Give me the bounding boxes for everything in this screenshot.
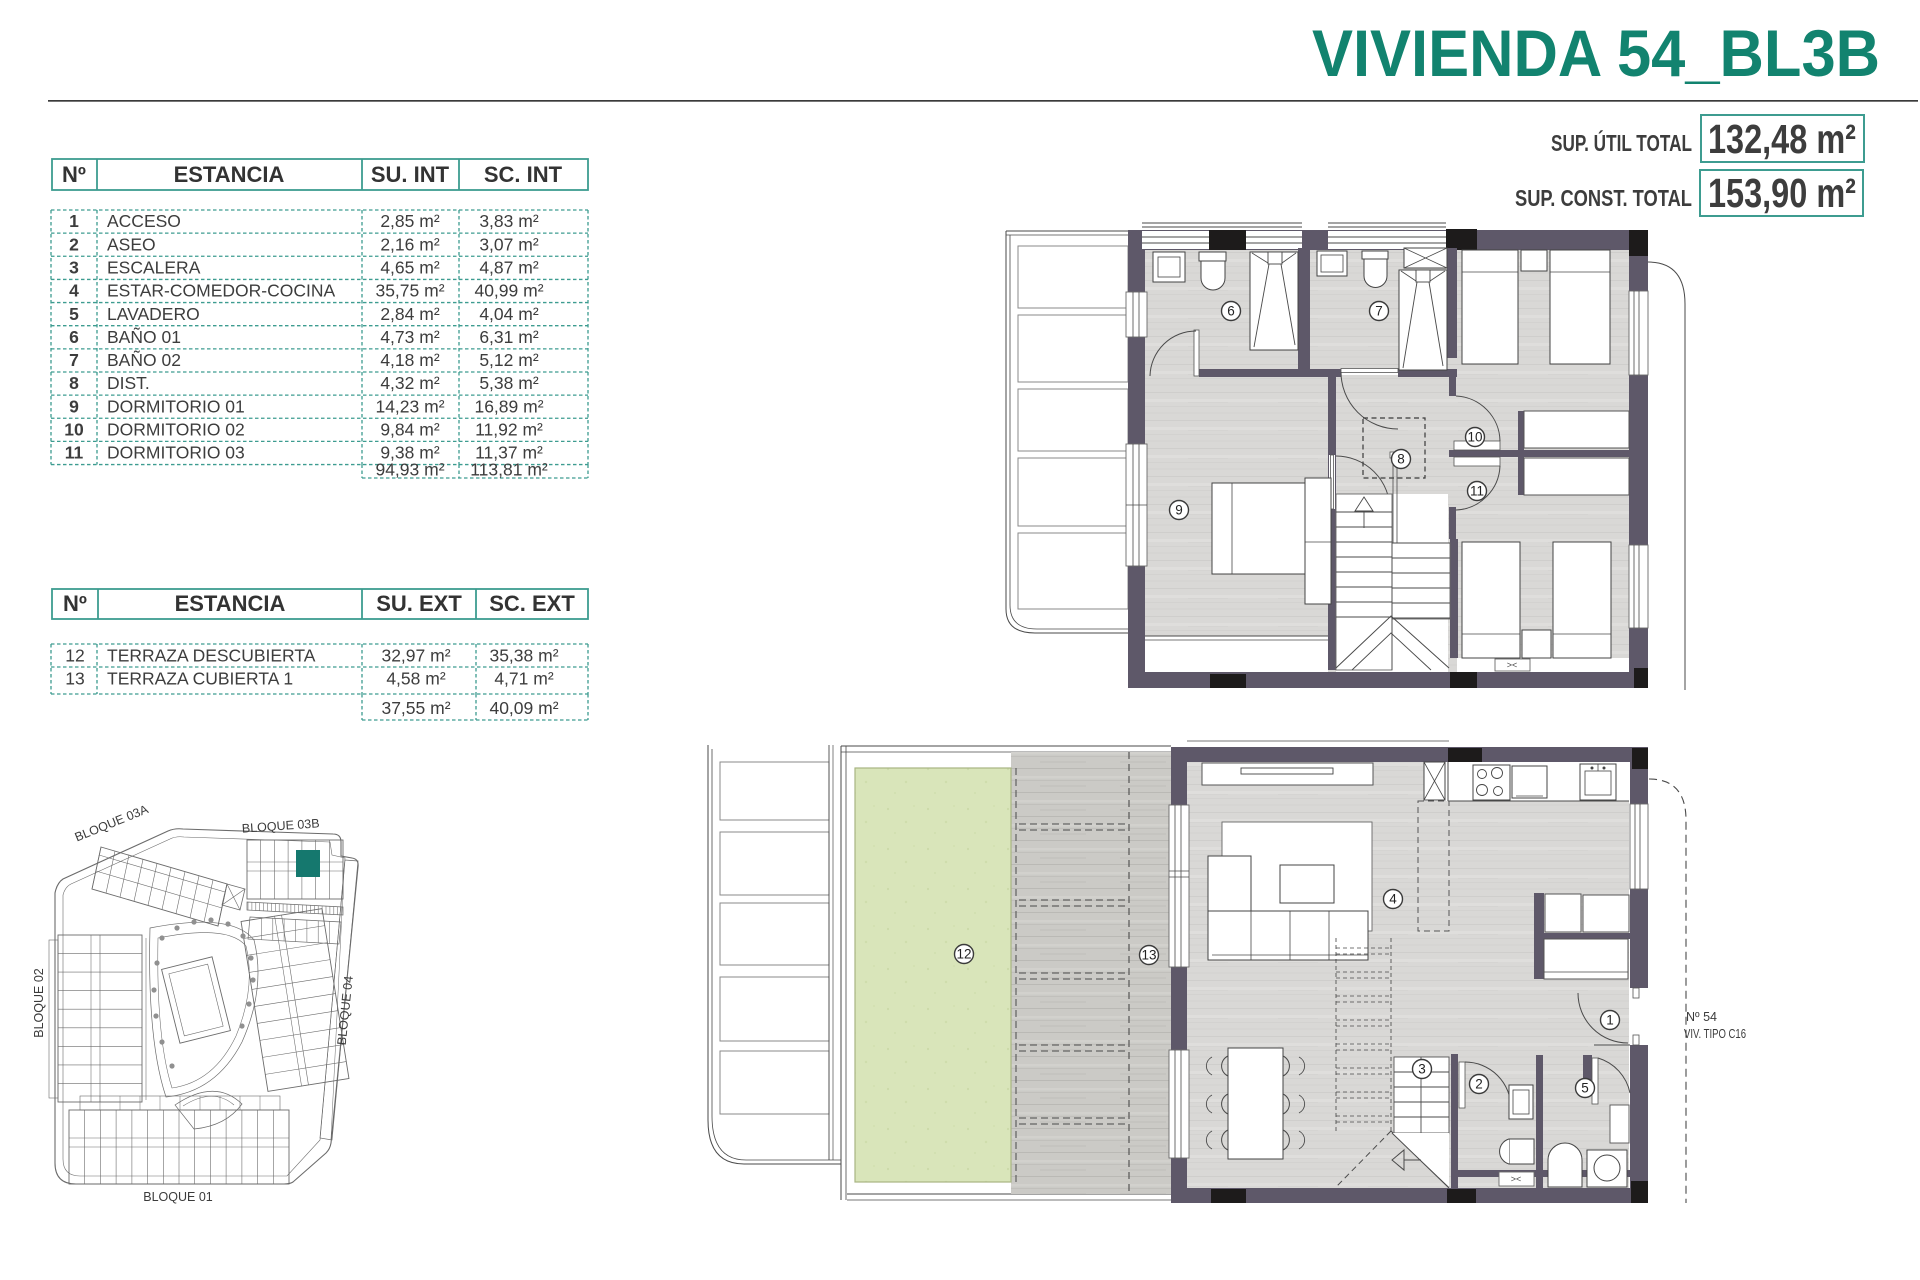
svg-text:VIVIENDA 54_BL3B: VIVIENDA 54_BL3B — [1312, 16, 1880, 90]
svg-text:3,07 m²: 3,07 m² — [479, 234, 538, 254]
svg-text:8: 8 — [69, 373, 79, 393]
svg-text:13: 13 — [65, 669, 84, 689]
svg-text:13: 13 — [1141, 948, 1156, 963]
svg-text:ESTANCIA: ESTANCIA — [174, 162, 285, 187]
svg-text:4: 4 — [1389, 892, 1397, 907]
svg-text:4,73 m²: 4,73 m² — [380, 327, 439, 347]
svg-text:SUP. ÚTIL TOTAL: SUP. ÚTIL TOTAL — [1551, 129, 1692, 156]
svg-text:11: 11 — [65, 443, 84, 463]
svg-text:SUP. CONST. TOTAL: SUP. CONST. TOTAL — [1515, 185, 1692, 211]
svg-text:12: 12 — [65, 646, 84, 666]
svg-text:37,55 m²: 37,55 m² — [381, 698, 450, 718]
svg-text:2,16 m²: 2,16 m² — [380, 234, 439, 254]
svg-text:Nº: Nº — [62, 162, 86, 187]
svg-text:8: 8 — [1397, 452, 1405, 467]
svg-text:11,92 m²: 11,92 m² — [475, 420, 543, 440]
svg-text:6,31 m²: 6,31 m² — [479, 327, 538, 347]
svg-text:5: 5 — [1581, 1081, 1589, 1096]
svg-text:32,97 m²: 32,97 m² — [381, 646, 450, 666]
svg-text:SC. EXT: SC. EXT — [489, 591, 575, 616]
svg-text:SU. INT: SU. INT — [371, 162, 450, 187]
svg-text:153,90 m²: 153,90 m² — [1708, 170, 1856, 216]
svg-text:9,84 m²: 9,84 m² — [380, 420, 439, 440]
svg-text:10: 10 — [64, 420, 84, 440]
svg-text:DIST.: DIST. — [107, 373, 150, 393]
svg-text:2: 2 — [1475, 1077, 1483, 1092]
svg-text:2,84 m²: 2,84 m² — [380, 304, 439, 324]
svg-text:12: 12 — [956, 947, 971, 962]
svg-text:DORMITORIO 03: DORMITORIO 03 — [107, 443, 245, 463]
svg-text:11: 11 — [1470, 484, 1484, 499]
svg-text:5: 5 — [69, 304, 79, 324]
svg-text:1: 1 — [69, 211, 79, 231]
svg-text:40,99 m²: 40,99 m² — [474, 281, 543, 301]
svg-text:4: 4 — [69, 281, 79, 301]
svg-text:TERRAZA CUBIERTA 1: TERRAZA CUBIERTA 1 — [107, 669, 293, 689]
svg-text:7: 7 — [1375, 304, 1383, 319]
svg-text:DORMITORIO 02: DORMITORIO 02 — [107, 420, 245, 440]
svg-text:4,18 m²: 4,18 m² — [380, 350, 439, 370]
svg-text:113,81 m²: 113,81 m² — [470, 460, 548, 480]
svg-text:ACCESO: ACCESO — [107, 211, 181, 231]
svg-text:ESCALERA: ESCALERA — [107, 258, 201, 278]
svg-text:35,38 m²: 35,38 m² — [489, 646, 558, 666]
svg-text:6: 6 — [1227, 304, 1235, 319]
svg-text:10: 10 — [1467, 430, 1482, 445]
svg-text:BAÑO 01: BAÑO 01 — [107, 326, 181, 347]
svg-text:4,65 m²: 4,65 m² — [380, 258, 439, 278]
svg-text:4,32 m²: 4,32 m² — [380, 373, 439, 393]
svg-text:3: 3 — [1418, 1062, 1426, 1077]
svg-text:TERRAZA DESCUBIERTA: TERRAZA DESCUBIERTA — [107, 646, 316, 666]
svg-text:7: 7 — [69, 350, 79, 370]
svg-text:16,89 m²: 16,89 m² — [474, 396, 543, 416]
svg-text:BLOQUE 01: BLOQUE 01 — [143, 1190, 213, 1204]
svg-text:VIV. TIPO C16: VIV. TIPO C16 — [1684, 1027, 1746, 1041]
svg-text:6: 6 — [69, 327, 79, 347]
svg-text:ESTANCIA: ESTANCIA — [175, 591, 286, 616]
svg-text:2,85 m²: 2,85 m² — [380, 211, 439, 231]
svg-text:4,58 m²: 4,58 m² — [386, 669, 445, 689]
svg-text:LAVADERO: LAVADERO — [107, 304, 200, 324]
svg-text:SU. EXT: SU. EXT — [376, 591, 462, 616]
svg-text:SC. INT: SC. INT — [484, 162, 563, 187]
svg-text:BAÑO 02: BAÑO 02 — [107, 349, 181, 370]
svg-text:5,12 m²: 5,12 m² — [479, 350, 538, 370]
svg-text:1: 1 — [1606, 1013, 1614, 1028]
svg-text:9: 9 — [69, 396, 79, 416]
svg-text:BLOQUE 02: BLOQUE 02 — [32, 968, 46, 1038]
svg-text:DORMITORIO 01: DORMITORIO 01 — [107, 396, 245, 416]
svg-text:Nº 54: Nº 54 — [1686, 1010, 1717, 1024]
svg-text:9: 9 — [1175, 503, 1183, 518]
svg-text:3,83 m²: 3,83 m² — [479, 211, 538, 231]
svg-text:4,87 m²: 4,87 m² — [479, 258, 538, 278]
svg-text:><: >< — [1507, 660, 1518, 670]
svg-text:3: 3 — [69, 258, 79, 278]
svg-text:35,75 m²: 35,75 m² — [375, 281, 444, 301]
svg-text:><: >< — [1511, 1174, 1522, 1184]
svg-text:5,38 m²: 5,38 m² — [479, 373, 538, 393]
svg-text:ESTAR-COMEDOR-COCINA: ESTAR-COMEDOR-COCINA — [107, 281, 335, 301]
svg-text:2: 2 — [69, 234, 79, 254]
svg-text:40,09 m²: 40,09 m² — [489, 698, 558, 718]
svg-text:132,48 m²: 132,48 m² — [1708, 116, 1856, 162]
svg-text:14,23 m²: 14,23 m² — [375, 396, 444, 416]
svg-text:4,71 m²: 4,71 m² — [494, 669, 553, 689]
svg-text:ASEO: ASEO — [107, 234, 156, 254]
svg-text:94,93 m²: 94,93 m² — [375, 460, 444, 480]
svg-text:4,04 m²: 4,04 m² — [479, 304, 538, 324]
svg-text:Nº: Nº — [63, 591, 87, 616]
